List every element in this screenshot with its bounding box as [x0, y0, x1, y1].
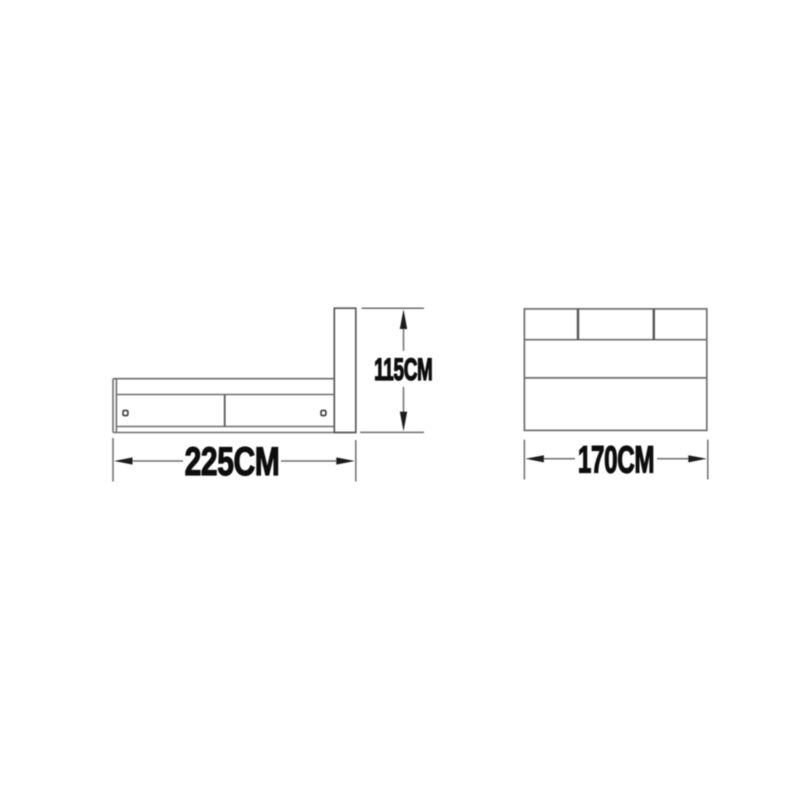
svg-text:115CM: 115CM [374, 351, 432, 387]
svg-text:170CM: 170CM [578, 438, 654, 481]
svg-text:225CM: 225CM [185, 440, 280, 484]
